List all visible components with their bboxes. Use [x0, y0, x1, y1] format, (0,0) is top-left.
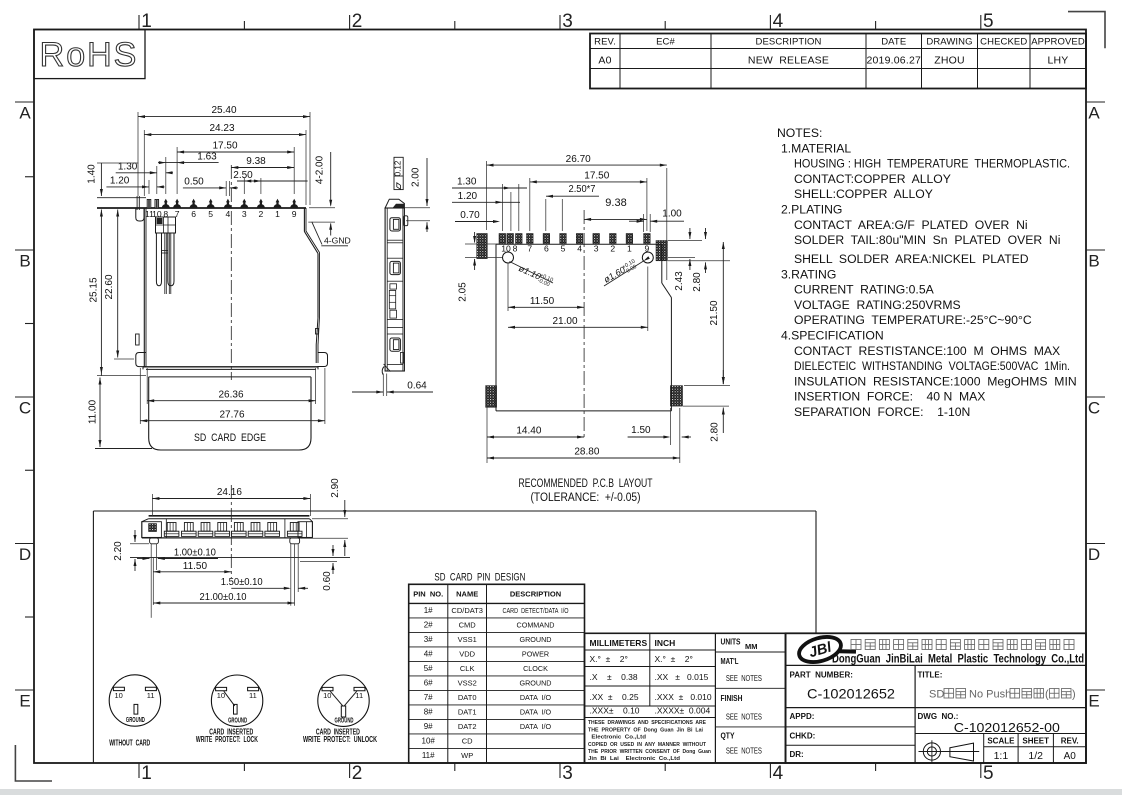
svg-text:1.00: 1.00 — [662, 209, 682, 220]
svg-text:0.64: 0.64 — [407, 381, 427, 392]
svg-text:GROUND: GROUND — [520, 635, 552, 644]
svg-text:Electronic Co.,Ltd: Electronic Co.,Ltd — [588, 735, 646, 741]
svg-text:4: 4 — [773, 11, 784, 32]
svg-text:CLK: CLK — [460, 664, 475, 673]
svg-text:DRAWING: DRAWING — [926, 37, 972, 48]
svg-text:A0: A0 — [598, 55, 611, 67]
svg-text:NOTES:: NOTES: — [777, 126, 822, 140]
svg-text:1.MATERIAL: 1.MATERIAL — [781, 141, 851, 155]
svg-text:RECOMMENDED P.C.B LAYOUT: RECOMMENDED P.C.B LAYOUT — [519, 478, 653, 490]
svg-text:CARD DETECT/DATA I/O: CARD DETECT/DATA I/O — [503, 606, 569, 615]
svg-text:26.70: 26.70 — [566, 154, 591, 165]
svg-text:4: 4 — [226, 209, 231, 219]
svg-text:5: 5 — [561, 244, 566, 254]
svg-text:GROUND: GROUND — [520, 679, 552, 688]
svg-text:4-GND: 4-GND — [324, 236, 351, 246]
svg-text:10#: 10# — [422, 737, 436, 746]
svg-text:CHKD:: CHKD: — [790, 732, 816, 741]
svg-text:SHELL SOLDER AREA:NICKEL PL: SHELL SOLDER AREA:NICKEL PLATED — [794, 252, 1029, 266]
svg-text:GROUND: GROUND — [126, 717, 145, 724]
svg-text:1/2: 1/2 — [1028, 750, 1043, 762]
svg-text:9#: 9# — [424, 722, 433, 731]
svg-text:11: 11 — [249, 691, 257, 700]
svg-text:11#: 11# — [422, 751, 435, 760]
svg-text:UNITS: UNITS — [721, 638, 742, 647]
svg-text:NAME: NAME — [456, 590, 478, 599]
svg-text:5: 5 — [208, 209, 213, 219]
svg-text:2.43: 2.43 — [674, 271, 685, 291]
svg-text:26.36: 26.36 — [218, 390, 243, 401]
svg-text:0.50: 0.50 — [184, 177, 204, 188]
svg-text:DAT2: DAT2 — [458, 722, 477, 731]
svg-text:Jin Bi Lai Electronic Co: Jin Bi Lai Electronic Co.,Ltd — [588, 756, 680, 762]
svg-text:E: E — [1088, 692, 1099, 711]
svg-text:CD: CD — [462, 737, 473, 746]
svg-text:SD CARD EDGE: SD CARD EDGE — [194, 432, 266, 444]
svg-text:DATE: DATE — [881, 37, 906, 48]
svg-text:6#: 6# — [424, 679, 433, 688]
svg-text:SEE NOTES: SEE NOTES — [726, 746, 762, 755]
svg-text:DIELECTEIC WITHSTANDING VOLT: DIELECTEIC WITHSTANDING VOLTAGE:500VAC 1… — [794, 359, 1070, 373]
svg-text:VSS1: VSS1 — [458, 635, 477, 644]
svg-text:CD/DAT3: CD/DAT3 — [451, 606, 483, 615]
svg-text:.XX ± 0.015: .XX ± 0.015 — [655, 672, 709, 682]
svg-text:11.50: 11.50 — [530, 296, 555, 307]
svg-text:3.RATING: 3.RATING — [781, 267, 836, 281]
svg-text:DATA I/O: DATA I/O — [520, 708, 552, 717]
svg-text:21.50: 21.50 — [709, 300, 720, 325]
svg-text:APPROVED: APPROVED — [1031, 37, 1085, 48]
svg-text:FINISH: FINISH — [721, 694, 743, 703]
svg-text:2: 2 — [352, 11, 363, 32]
svg-text:COMMAND: COMMAND — [517, 621, 555, 630]
svg-text:INCH: INCH — [655, 638, 676, 648]
svg-text:X.° ± 2°: X.° ± 2° — [655, 654, 693, 664]
svg-text:CURRENT RATING:0.5A: CURRENT RATING:0.5A — [794, 283, 935, 297]
svg-text:POWER: POWER — [522, 650, 549, 659]
svg-text:2.80: 2.80 — [692, 272, 703, 292]
svg-text:COPIED OR USED IN ANY MAN: COPIED OR USED IN ANY MANNER WITHOUT — [588, 742, 706, 748]
svg-text:DWG NO.:: DWG NO.: — [918, 712, 959, 721]
svg-text:24.16: 24.16 — [217, 487, 242, 498]
svg-text:14.40: 14.40 — [516, 426, 541, 437]
svg-text:24.23: 24.23 — [209, 123, 234, 134]
svg-text:9: 9 — [292, 209, 297, 219]
svg-text:2019.06.27: 2019.06.27 — [866, 55, 921, 67]
svg-text:DAT0: DAT0 — [458, 693, 477, 702]
svg-text:2.05: 2.05 — [458, 282, 469, 302]
svg-text:1.00±0.10: 1.00±0.10 — [174, 548, 216, 559]
svg-text:DESCRIPTION: DESCRIPTION — [510, 590, 561, 599]
svg-text:GROUND: GROUND — [228, 717, 247, 724]
svg-text:X.° ± 2°: X.° ± 2° — [590, 654, 628, 664]
svg-text:5: 5 — [983, 11, 994, 32]
svg-text:8: 8 — [513, 244, 518, 254]
svg-text:WITHOUT CARD: WITHOUT CARD — [109, 738, 150, 747]
svg-text:17.50: 17.50 — [212, 141, 237, 152]
svg-text:DESCRIPTION: DESCRIPTION — [755, 37, 821, 48]
svg-text:1: 1 — [141, 763, 152, 784]
svg-text:RoHS: RoHS — [40, 36, 139, 74]
svg-text:(TOLERANCE: +/-0.05): (TOLERANCE: +/-0.05) — [531, 492, 641, 504]
svg-text:DongGuan JinBiLai Metal Pla: DongGuan JinBiLai Metal Plastic Technolo… — [832, 652, 1084, 666]
svg-text:THESE DRAWINGS AND SPECIFIC: THESE DRAWINGS AND SPECIFICATIONS ARE — [588, 720, 706, 726]
svg-text:2.00: 2.00 — [411, 167, 422, 187]
svg-text:6: 6 — [191, 209, 196, 219]
svg-text:1.20: 1.20 — [110, 176, 130, 187]
svg-text:DAT1: DAT1 — [458, 708, 477, 717]
svg-text:4: 4 — [773, 763, 784, 784]
svg-text:4.SPECIFICATION: 4.SPECIFICATION — [781, 329, 884, 343]
svg-text:INSERTION FORCE: 40 N MAX: INSERTION FORCE: 40 N MAX — [794, 390, 985, 404]
svg-text:SD: SD — [929, 689, 944, 701]
svg-text:GROUND: GROUND — [335, 717, 354, 724]
svg-text:10: 10 — [323, 691, 331, 700]
svg-text:1.50±0.10: 1.50±0.10 — [221, 577, 263, 588]
svg-text:C: C — [19, 399, 31, 418]
svg-text:1.30: 1.30 — [457, 177, 477, 188]
svg-text:C-102012652: C-102012652 — [807, 686, 895, 702]
svg-text:MAT'L: MAT'L — [721, 657, 739, 666]
svg-text:3: 3 — [594, 244, 599, 254]
svg-text:.XXX ± 0.010: .XXX ± 0.010 — [655, 692, 712, 702]
svg-text:HOUSING : HIGH TEMPERATURE T: HOUSING : HIGH TEMPERATURE THERMOPLASTIC… — [794, 157, 1070, 171]
svg-text:OPERATING TEMPERATURE:-25°C~9: OPERATING TEMPERATURE:-25°C~90°C — [794, 313, 1032, 327]
svg-text:QTY: QTY — [721, 732, 736, 741]
svg-text:SCALE: SCALE — [987, 737, 1015, 746]
svg-text:(: ( — [1045, 689, 1049, 701]
svg-text:9.38: 9.38 — [605, 197, 626, 209]
svg-text:8: 8 — [163, 209, 168, 219]
svg-text:SEE NOTES: SEE NOTES — [726, 674, 762, 683]
svg-text:THE PRIOR WRITTEN CONSENT: THE PRIOR WRITTEN CONSENT OF Dong Guan — [588, 749, 711, 755]
svg-text:MILLIMETERS: MILLIMETERS — [590, 638, 648, 648]
svg-text:25.40: 25.40 — [211, 105, 236, 116]
svg-text:10: 10 — [217, 691, 225, 700]
svg-text:3: 3 — [562, 763, 573, 784]
svg-text:DATA I/O: DATA I/O — [520, 722, 552, 731]
svg-text:1#: 1# — [424, 606, 433, 615]
svg-text:7#: 7# — [424, 693, 433, 702]
svg-text:2.50: 2.50 — [233, 170, 253, 181]
svg-text:.XXX± 0.10: .XXX± 0.10 — [590, 706, 640, 716]
svg-text:C-102012652-00: C-102012652-00 — [954, 720, 1060, 735]
svg-text:SHELL:COPPER ALLOY: SHELL:COPPER ALLOY — [794, 187, 933, 201]
svg-text:4-2.00: 4-2.00 — [315, 155, 326, 184]
svg-text:TITLE:: TITLE: — [918, 671, 943, 680]
svg-text:SOLDER TAIL:80u"MIN Sn PLAT: SOLDER TAIL:80u"MIN Sn PLATED OVER Ni — [794, 233, 1060, 247]
svg-text:CONTACT AREA:G/F PLATED OVE: CONTACT AREA:G/F PLATED OVER Ni — [794, 218, 1028, 232]
svg-text:): ) — [1072, 689, 1076, 701]
svg-text:WP: WP — [461, 751, 473, 760]
svg-text:7: 7 — [175, 209, 180, 219]
svg-text:C: C — [1088, 399, 1100, 418]
svg-text:No Push: No Push — [969, 689, 1011, 701]
svg-text:2: 2 — [352, 763, 363, 784]
svg-text:1:1: 1:1 — [994, 750, 1009, 762]
svg-text:VOLTAGE RATING:250VRMS: VOLTAGE RATING:250VRMS — [794, 298, 961, 312]
svg-text:2#: 2# — [424, 621, 433, 630]
svg-text:0.12: 0.12 — [394, 160, 403, 176]
svg-text:LHY: LHY — [1047, 55, 1068, 67]
svg-text:REV.: REV. — [594, 37, 616, 48]
svg-text:SHEET: SHEET — [1022, 737, 1049, 746]
svg-text:VDD: VDD — [459, 650, 475, 659]
svg-text:DR:: DR: — [790, 750, 804, 759]
svg-text:D: D — [1088, 545, 1100, 564]
svg-text:3#: 3# — [424, 635, 433, 644]
svg-text:11: 11 — [355, 691, 363, 700]
svg-text:NEW RELEASE: NEW RELEASE — [748, 55, 829, 67]
svg-text:2.20: 2.20 — [113, 541, 124, 561]
svg-text:21.00±0.10: 21.00±0.10 — [200, 592, 247, 603]
svg-text:1: 1 — [627, 244, 632, 254]
svg-text:3: 3 — [242, 209, 247, 219]
svg-text:21.00: 21.00 — [552, 316, 577, 327]
svg-text:0.60: 0.60 — [322, 571, 333, 591]
svg-text:3: 3 — [562, 11, 573, 32]
svg-text:1.20: 1.20 — [458, 191, 478, 202]
svg-text:.XX ± 0.25: .XX ± 0.25 — [590, 692, 639, 702]
svg-text:11: 11 — [147, 691, 155, 700]
svg-text:2.90: 2.90 — [330, 478, 341, 498]
svg-text:WRITE PROTECT: LOCK: WRITE PROTECT: LOCK — [196, 735, 258, 744]
svg-text:B: B — [19, 252, 30, 271]
svg-text:D: D — [19, 545, 31, 564]
svg-text:MM: MM — [745, 642, 758, 651]
svg-text:11.00: 11.00 — [88, 399, 99, 424]
svg-text:EC#: EC# — [656, 37, 675, 48]
svg-text:8#: 8# — [424, 708, 433, 717]
svg-text:11.50: 11.50 — [183, 561, 208, 572]
svg-text:A: A — [1088, 104, 1100, 123]
svg-text:REV.: REV. — [1061, 737, 1079, 746]
svg-text:2.50*7: 2.50*7 — [569, 184, 596, 195]
svg-text:2: 2 — [610, 244, 615, 254]
svg-text:A: A — [19, 104, 31, 123]
svg-text:10: 10 — [152, 209, 162, 219]
svg-text:E: E — [19, 692, 30, 711]
svg-text:A0: A0 — [1064, 751, 1077, 762]
svg-text:THE PROPERTY OF Dong Guan: THE PROPERTY OF Dong Guan Jin Bi Lai — [588, 727, 703, 733]
svg-text:SEPARATION FORCE: 1-10N: SEPARATION FORCE: 1-10N — [794, 405, 970, 419]
svg-text:25.15: 25.15 — [89, 277, 100, 302]
svg-text:B: B — [1088, 252, 1099, 271]
svg-text:1.50: 1.50 — [631, 425, 651, 436]
svg-text:APPD:: APPD: — [790, 712, 815, 721]
svg-text:1.40: 1.40 — [87, 164, 98, 184]
svg-text:5#: 5# — [424, 664, 433, 673]
svg-text:2: 2 — [259, 209, 264, 219]
svg-text:27.76: 27.76 — [219, 410, 244, 421]
svg-text:4: 4 — [577, 244, 582, 254]
svg-text:.X ± 0.38: .X ± 0.38 — [590, 672, 638, 682]
svg-text:17.50: 17.50 — [584, 171, 609, 182]
svg-text:22.60: 22.60 — [104, 274, 115, 299]
svg-text:1: 1 — [275, 209, 280, 219]
svg-text:CONTACT:COPPER ALLOY: CONTACT:COPPER ALLOY — [794, 172, 951, 186]
svg-text:SD CARD PIN DESIGN: SD CARD PIN DESIGN — [434, 571, 525, 583]
svg-text:INSULATION RESISTANCE:1000 M: INSULATION RESISTANCE:1000 MegOHMS MIN — [794, 374, 1077, 388]
svg-text:SEE NOTES: SEE NOTES — [726, 713, 762, 722]
svg-text:DATA I/O: DATA I/O — [520, 693, 552, 702]
svg-text:VSS2: VSS2 — [458, 679, 477, 688]
svg-text:7: 7 — [527, 244, 532, 254]
svg-text:ZHOU: ZHOU — [934, 55, 965, 67]
svg-text:5: 5 — [983, 763, 994, 784]
svg-text:CMD: CMD — [459, 621, 477, 630]
svg-text:CONTACT RESTISTANCE:100 M O: CONTACT RESTISTANCE:100 M OHMS MAX — [794, 344, 1060, 358]
svg-text:1.63: 1.63 — [197, 152, 217, 163]
svg-text:PART NUMBER:: PART NUMBER: — [790, 671, 853, 680]
svg-text:CHECKED: CHECKED — [980, 37, 1027, 48]
svg-text:0.70: 0.70 — [460, 210, 480, 221]
svg-text:2.PLATING: 2.PLATING — [781, 203, 842, 217]
svg-text:6: 6 — [544, 244, 549, 254]
svg-text:10: 10 — [115, 691, 123, 700]
svg-text:28.80: 28.80 — [574, 447, 599, 458]
svg-text:9.38: 9.38 — [246, 156, 266, 167]
svg-text:CLOCK: CLOCK — [523, 664, 548, 673]
svg-text:4#: 4# — [424, 650, 433, 659]
svg-text:.XXXX± 0.004: .XXXX± 0.004 — [655, 706, 711, 716]
svg-text:PIN NO.: PIN NO. — [413, 590, 443, 599]
svg-text:2.80: 2.80 — [710, 422, 721, 442]
svg-text:WRITE PROTECT: UNLOCK: WRITE PROTECT: UNLOCK — [303, 735, 377, 744]
